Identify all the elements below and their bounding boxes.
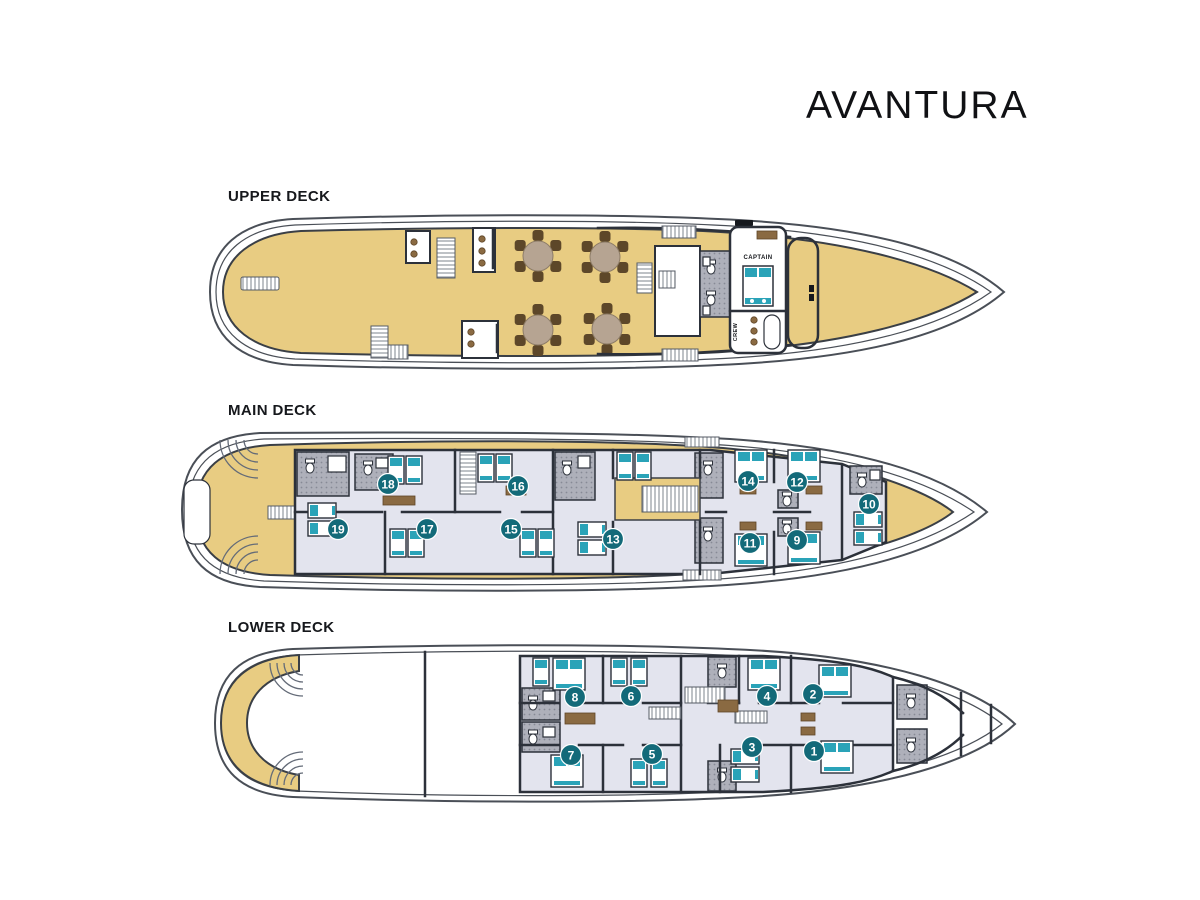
stairs-icon bbox=[659, 271, 675, 288]
sink-icon bbox=[870, 470, 880, 480]
stair-lobby bbox=[655, 246, 700, 336]
cabin-badge: 12 bbox=[787, 472, 808, 493]
sink-icon bbox=[703, 306, 710, 315]
toilet-icon bbox=[364, 461, 373, 475]
cabin-badge: 1 bbox=[804, 741, 825, 762]
stairs-icon bbox=[460, 452, 476, 494]
cabin-badge: 15 bbox=[501, 519, 522, 540]
toilet-icon bbox=[306, 459, 315, 473]
stairs-icon bbox=[735, 711, 767, 723]
deck-label-lower: LOWER DECK bbox=[228, 619, 335, 636]
cabin-badge: 7 bbox=[561, 745, 582, 766]
captain-crew-block: CAPTAIN CREW bbox=[730, 220, 786, 353]
sideboard-icon bbox=[565, 713, 595, 724]
toilet-icon bbox=[858, 473, 867, 487]
bench-icon bbox=[662, 349, 698, 361]
bed-icon bbox=[390, 529, 406, 557]
cabin-badge: 14 bbox=[738, 471, 759, 492]
bed-icon bbox=[406, 456, 422, 484]
cabin-badge: 11 bbox=[740, 533, 761, 554]
desk-icon bbox=[806, 522, 822, 530]
shower-icon bbox=[328, 456, 346, 472]
sink-icon bbox=[376, 458, 388, 468]
svg-text:5: 5 bbox=[649, 748, 656, 762]
svg-text:3: 3 bbox=[749, 741, 756, 755]
cabin-badge: 17 bbox=[417, 519, 438, 540]
stool-icon bbox=[468, 329, 474, 335]
bed-icon bbox=[631, 759, 647, 787]
toilet-icon bbox=[704, 527, 713, 541]
boat-name-title: AVANTURA bbox=[806, 84, 1029, 128]
toilet-icon bbox=[718, 664, 727, 678]
stairs-icon bbox=[388, 345, 408, 359]
svg-text:19: 19 bbox=[331, 523, 345, 537]
toilet-icon bbox=[783, 492, 792, 506]
svg-text:1: 1 bbox=[811, 745, 818, 759]
stairs-icon bbox=[685, 437, 719, 447]
cabin-badge: 5 bbox=[642, 744, 663, 765]
deck-label-main: MAIN DECK bbox=[228, 402, 317, 419]
svg-text:14: 14 bbox=[741, 475, 755, 489]
deck-label-upper: UPPER DECK bbox=[228, 188, 330, 205]
stool-icon bbox=[479, 236, 485, 242]
cabin-badge: 16 bbox=[508, 476, 529, 497]
bed-icon bbox=[538, 529, 554, 557]
captain-cabin-label: CAPTAIN bbox=[743, 255, 772, 261]
bed-icon bbox=[496, 454, 512, 482]
svg-text:10: 10 bbox=[862, 498, 876, 512]
svg-text:2: 2 bbox=[810, 688, 817, 702]
bed-icon bbox=[611, 658, 627, 686]
desk-icon bbox=[801, 713, 815, 721]
cabin-badge: 2 bbox=[803, 684, 824, 705]
bed-icon bbox=[748, 658, 780, 690]
svg-text:4: 4 bbox=[764, 690, 771, 704]
toilet-icon bbox=[907, 738, 916, 752]
bed-icon bbox=[520, 529, 536, 557]
svg-text:8: 8 bbox=[572, 691, 579, 705]
toilet-icon bbox=[707, 291, 716, 305]
svg-text:7: 7 bbox=[568, 749, 575, 763]
sink-icon bbox=[543, 727, 555, 737]
bed-icon bbox=[854, 530, 882, 545]
stool-icon bbox=[751, 339, 757, 345]
cabin-badge: 3 bbox=[742, 737, 763, 758]
stool-icon bbox=[468, 341, 474, 347]
bed-icon bbox=[731, 767, 759, 782]
toilet-icon bbox=[529, 730, 538, 744]
stool-icon bbox=[751, 328, 757, 334]
bed-icon bbox=[578, 540, 606, 555]
stairs-icon bbox=[437, 238, 455, 278]
bed-icon bbox=[533, 658, 549, 686]
upper-deck-plan: CAPTAIN CREW bbox=[198, 212, 1010, 370]
double-bed-icon bbox=[743, 266, 773, 306]
stairs-icon bbox=[371, 326, 388, 358]
bar-counter bbox=[406, 231, 430, 263]
cabin-badge: 10 bbox=[859, 494, 880, 515]
crew-cabin-label: CREW bbox=[733, 322, 739, 341]
desk-icon bbox=[757, 231, 777, 239]
stool-icon bbox=[479, 248, 485, 254]
toilet-icon bbox=[907, 694, 916, 708]
desk-icon bbox=[740, 522, 756, 530]
bench-icon bbox=[662, 226, 696, 238]
stool-icon bbox=[411, 251, 417, 257]
svg-text:12: 12 bbox=[790, 476, 804, 490]
desk-icon bbox=[806, 486, 822, 494]
svg-text:15: 15 bbox=[504, 523, 518, 537]
bed-icon bbox=[578, 522, 606, 537]
sun-bench-icon bbox=[241, 277, 279, 290]
helm-icon bbox=[809, 294, 814, 301]
desk-icon bbox=[718, 700, 738, 712]
bed-icon bbox=[553, 658, 585, 690]
bed-icon bbox=[821, 741, 853, 773]
bed-icon bbox=[308, 503, 336, 518]
desk-icon bbox=[383, 496, 415, 505]
stairs-icon bbox=[642, 486, 698, 512]
cabin-badge: 13 bbox=[603, 529, 624, 550]
deck-plan-canvas: AVANTURA UPPER DECK bbox=[0, 0, 1200, 900]
bed-icon bbox=[478, 454, 494, 482]
cabin-badge: 18 bbox=[378, 474, 399, 495]
stern-platform bbox=[184, 480, 210, 544]
toilet-icon bbox=[704, 461, 713, 475]
sink-icon bbox=[703, 257, 710, 266]
cabin-badge: 19 bbox=[328, 519, 349, 540]
stool-icon bbox=[479, 260, 485, 266]
svg-text:18: 18 bbox=[381, 478, 395, 492]
bed-icon bbox=[631, 658, 647, 686]
stairs-icon bbox=[637, 263, 652, 293]
cabin-badge: 6 bbox=[621, 686, 642, 707]
bar-counter bbox=[462, 321, 498, 358]
lower-deck-plan: 8 6 4 2 7 5 3 1 bbox=[203, 643, 1021, 805]
stairs-icon bbox=[683, 570, 721, 580]
toilet-icon bbox=[563, 461, 572, 475]
sofa-icon bbox=[764, 315, 780, 349]
svg-text:6: 6 bbox=[628, 690, 635, 704]
cabin-badge: 4 bbox=[757, 686, 778, 707]
svg-text:9: 9 bbox=[794, 534, 801, 548]
helm-icon bbox=[809, 285, 814, 292]
sink-icon bbox=[578, 456, 590, 468]
cabin-badge: 9 bbox=[787, 530, 808, 551]
svg-text:11: 11 bbox=[744, 537, 757, 551]
stairs-icon bbox=[649, 707, 681, 719]
sink-icon bbox=[543, 691, 555, 701]
svg-text:13: 13 bbox=[606, 533, 620, 547]
desk-icon bbox=[801, 727, 815, 735]
stool-icon bbox=[751, 317, 757, 323]
svg-text:17: 17 bbox=[420, 523, 434, 537]
console-icon bbox=[735, 220, 753, 226]
stool-icon bbox=[411, 239, 417, 245]
cabin-badge: 8 bbox=[565, 687, 586, 708]
svg-text:16: 16 bbox=[511, 480, 525, 494]
main-deck-plan: 18 16 19 17 15 13 14 12 11 9 10 bbox=[170, 426, 1000, 594]
